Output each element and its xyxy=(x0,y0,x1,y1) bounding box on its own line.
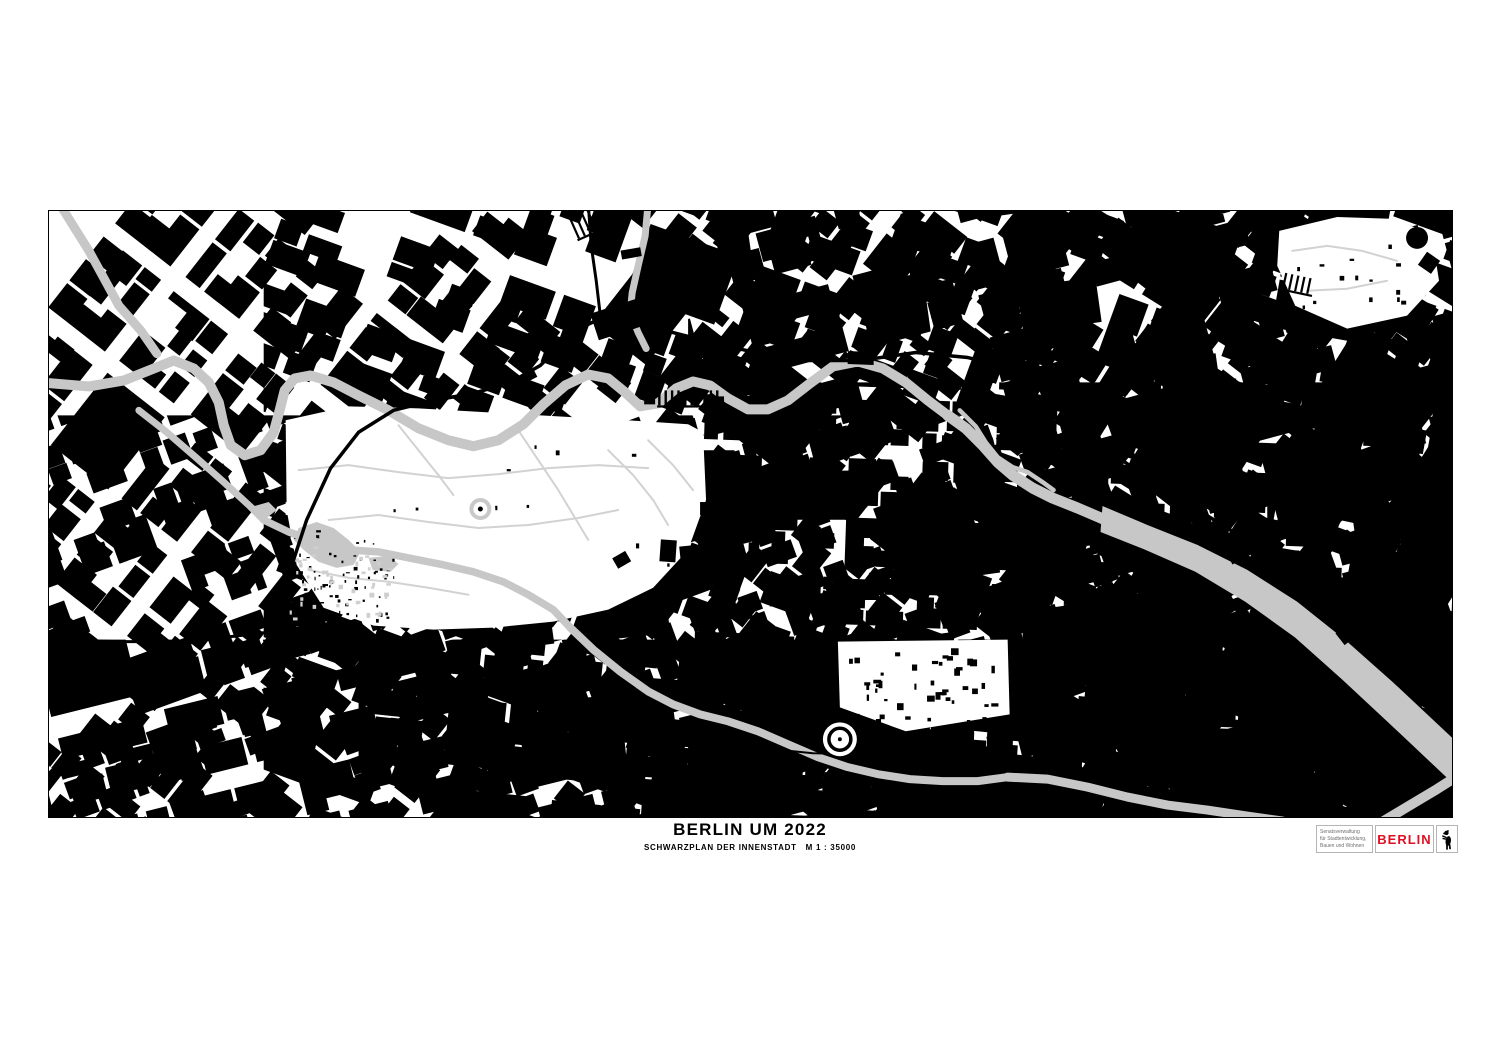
agency-line-2: für Stadtentwicklung, xyxy=(1320,836,1369,843)
map-title: BERLIN UM 2022 xyxy=(0,821,1500,840)
map-subtitle: SCHWARZPLAN DER INNENSTADTM 1 : 35000 xyxy=(0,843,1500,852)
city-map xyxy=(48,210,1453,818)
berlin-wordmark: BERLIN xyxy=(1375,825,1434,853)
map-subtitle-text: SCHWARZPLAN DER INNENSTADT xyxy=(644,843,797,852)
agency-line-1: Senatsverwaltung xyxy=(1320,829,1369,836)
agency-line-3: Bauen und Wohnen xyxy=(1320,843,1369,850)
agency-name-box: Senatsverwaltung für Stadtentwicklung, B… xyxy=(1316,825,1373,853)
title-block: BERLIN UM 2022 SCHWARZPLAN DER INNENSTAD… xyxy=(0,821,1500,852)
map-scale-label: M 1 : 35000 xyxy=(806,843,856,852)
poster-page: { "poster": { "background": "#ffffff" },… xyxy=(0,0,1500,1061)
berlin-bear-box xyxy=(1436,825,1458,853)
berlin-bear-icon xyxy=(1440,828,1455,851)
schwarzplan-figure-ground xyxy=(49,211,1452,817)
publisher-logo-block: Senatsverwaltung für Stadtentwicklung, B… xyxy=(1316,825,1458,853)
